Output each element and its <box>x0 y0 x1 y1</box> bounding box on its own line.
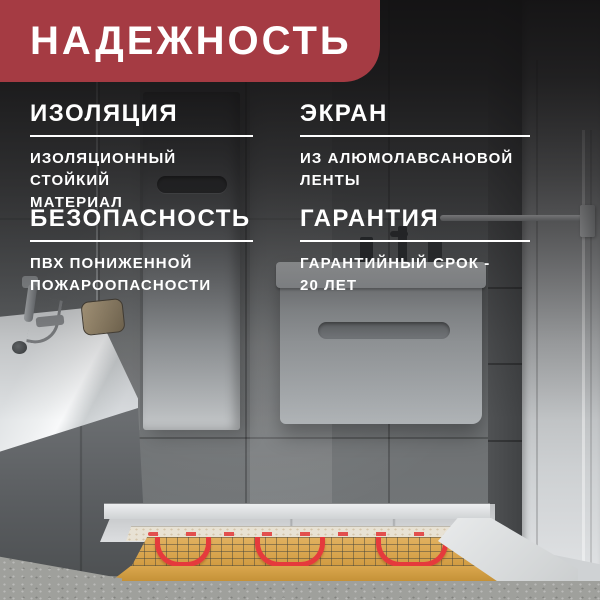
wall-tile-seam <box>488 363 523 365</box>
wall-tile-seam <box>488 287 523 289</box>
product-infographic: НАДЕЖНОСТЬ ИЗОЛЯЦИЯ ИЗОЛЯЦИОННЫЙ СТОЙКИЙ… <box>0 0 600 600</box>
wall-corner-column <box>488 0 523 548</box>
wall-tile-seam <box>388 0 390 504</box>
door-bevel <box>582 130 585 600</box>
towel-bar-mount <box>580 205 595 237</box>
baseboard <box>104 503 490 519</box>
tall-cabinet <box>143 92 240 430</box>
tub-drain <box>12 341 27 354</box>
cabinet-handle <box>157 176 227 193</box>
concrete-screed <box>0 581 600 600</box>
towel-bar <box>440 215 584 221</box>
wall-tile-seam <box>0 218 488 220</box>
soap-dish <box>80 298 125 336</box>
door-bevel-shadow <box>590 130 592 600</box>
door-edge-line <box>536 60 538 600</box>
title-banner: НАДЕЖНОСТЬ <box>0 0 380 82</box>
wall-tile-seam <box>488 440 523 442</box>
cable-top-dashes <box>148 532 466 536</box>
banner-title: НАДЕЖНОСТЬ <box>30 21 352 61</box>
cable-loop <box>255 537 325 567</box>
door-panel <box>522 0 600 600</box>
cable-loop <box>155 537 211 567</box>
cable-loop <box>376 537 448 567</box>
faucet-spout <box>390 231 408 237</box>
vanity-handle <box>318 322 450 339</box>
vanity-sink-top <box>276 262 486 288</box>
